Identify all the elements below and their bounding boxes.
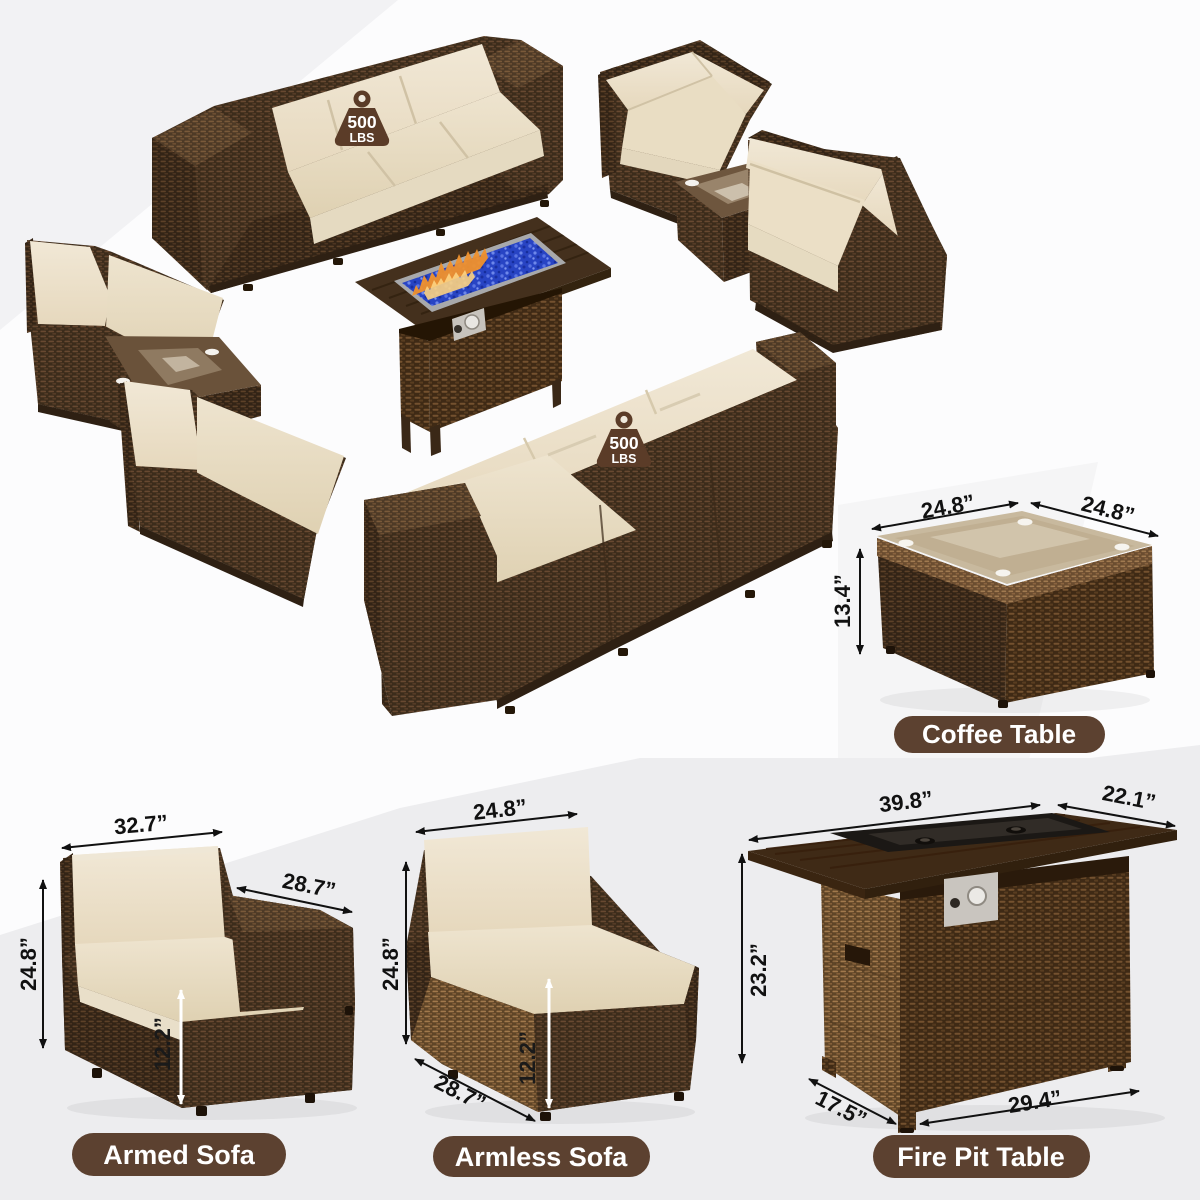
svg-text:12.2”: 12.2” [515,1031,540,1085]
svg-text:Armed Sofa: Armed Sofa [103,1140,256,1170]
svg-text:32.7”: 32.7” [113,810,169,840]
svg-text:500: 500 [609,433,638,453]
svg-text:23.2”: 23.2” [746,943,771,997]
svg-text:Coffee Table: Coffee Table [922,719,1076,749]
svg-text:500: 500 [347,112,376,132]
svg-text:24.8”: 24.8” [378,937,403,991]
svg-text:LBS: LBS [612,452,637,466]
svg-text:13.4”: 13.4” [830,574,855,628]
svg-text:24.8”: 24.8” [16,937,41,991]
svg-text:12.2”: 12.2” [150,1017,175,1071]
svg-text:LBS: LBS [350,131,375,145]
svg-text:Armless Sofa: Armless Sofa [455,1142,629,1172]
svg-text:Fire Pit Table: Fire Pit Table [897,1142,1065,1172]
